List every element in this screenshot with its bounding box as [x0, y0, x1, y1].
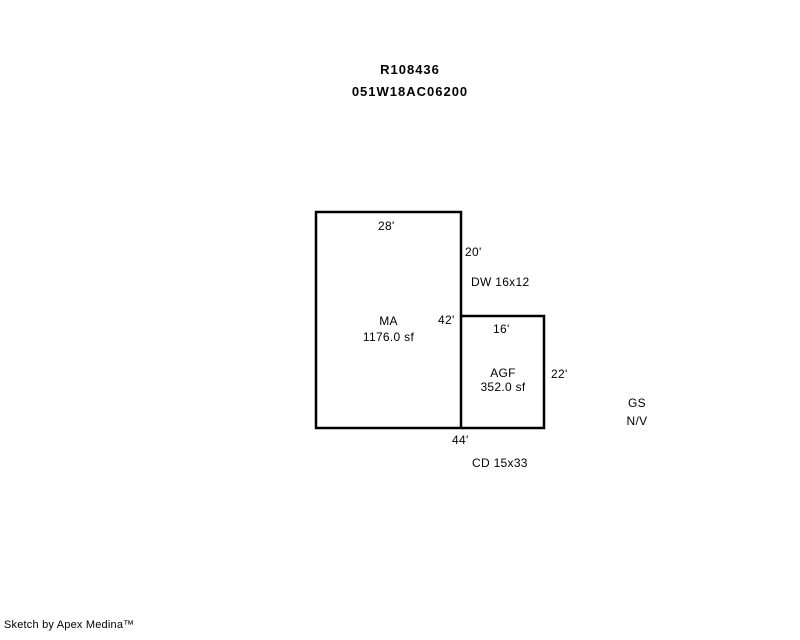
dimension-agf-side: 22': [551, 367, 568, 381]
dimension-ma-side: 42': [438, 313, 455, 327]
note-gs-line2: N/V: [619, 412, 655, 430]
dimension-agf-top: 16': [493, 322, 510, 336]
sketch-credit: Sketch by Apex Medina™: [4, 619, 134, 631]
area-agf-size: 352.0 sf: [461, 380, 545, 394]
note-gs: GS N/V: [619, 394, 655, 430]
dimension-ma-top: 28': [378, 219, 395, 233]
dimension-right-upper: 20': [465, 245, 482, 259]
note-cd: CD 15x33: [472, 456, 528, 470]
area-ma-size: 1176.0 sf: [340, 329, 437, 345]
dimension-bottom: 44': [452, 433, 469, 447]
area-agf-code: AGF: [461, 366, 545, 380]
sketch-page: R108436 051W18AC06200 28' 20' DW 16x12 4…: [0, 0, 800, 640]
note-dw: DW 16x12: [471, 275, 529, 289]
area-label-agf: AGF 352.0 sf: [461, 366, 545, 394]
area-ma-code: MA: [340, 313, 437, 329]
note-gs-line1: GS: [619, 394, 655, 412]
area-label-ma: MA 1176.0 sf: [340, 313, 437, 345]
